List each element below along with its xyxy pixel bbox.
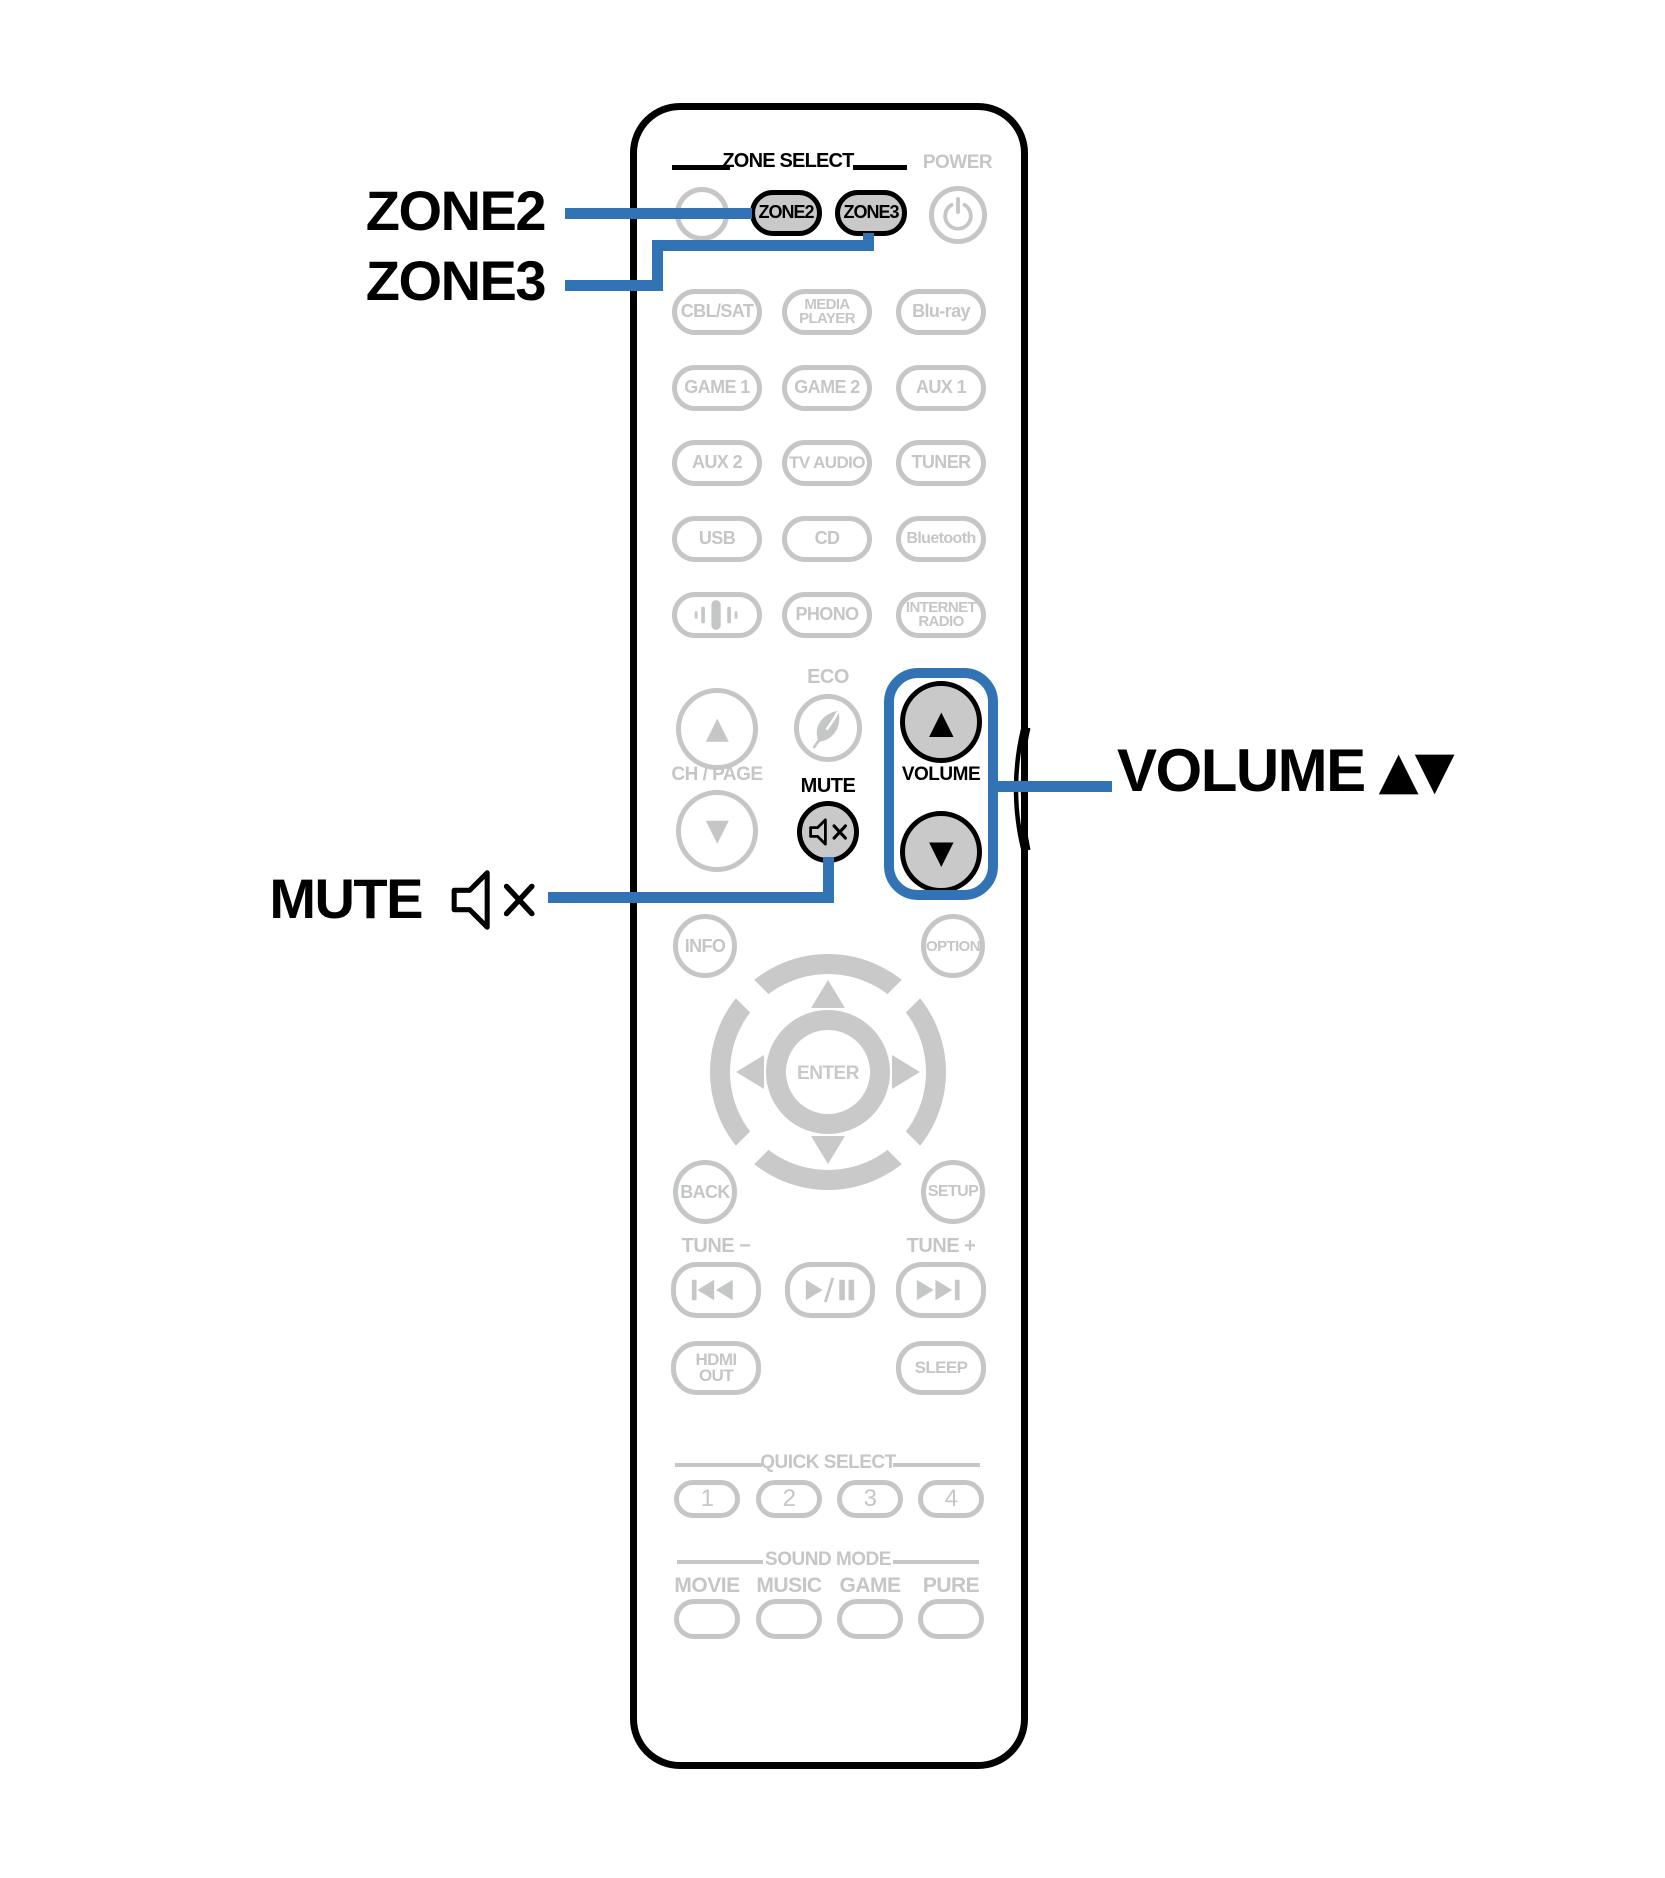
source-internet-radio[interactable]: INTERNET RADIO: [896, 592, 986, 638]
source-aux2[interactable]: AUX 2: [672, 440, 762, 486]
zone3-button[interactable]: ZONE3: [835, 190, 907, 236]
source-tv-audio[interactable]: TV AUDIO: [782, 440, 872, 486]
quick-select-title: QUICK SELECT: [738, 1452, 918, 1474]
sound-mode-music-button[interactable]: [756, 1599, 822, 1639]
sound-mode-title: SOUND MODE: [738, 1549, 918, 1571]
source-aux1[interactable]: AUX 1: [896, 365, 986, 411]
quick-select-3-button[interactable]: 3: [837, 1480, 903, 1518]
source-usb[interactable]: USB: [672, 516, 762, 562]
eco-button[interactable]: [794, 694, 862, 762]
skip-back-icon: [689, 1277, 743, 1303]
remote-diagram: ZONE SELECT POWER ZONE2 ZONE3 CBL/SAT ME…: [0, 0, 1665, 1878]
up-triangle-icon: ▲: [706, 714, 728, 744]
sound-mode-line-right: [893, 1560, 979, 1564]
source-game2[interactable]: GAME 2: [782, 365, 872, 411]
quick-select-4-button[interactable]: 4: [918, 1480, 984, 1518]
callout-line-zone3-h1: [652, 240, 874, 251]
mute-button-label: MUTE: [790, 775, 866, 798]
sound-mode-music-label: MUSIC: [744, 1574, 834, 1598]
power-button[interactable]: [929, 186, 987, 244]
quick-select-line-right: [893, 1463, 980, 1467]
source-cd[interactable]: CD: [782, 516, 872, 562]
ch-page-up-button[interactable]: ▲: [676, 688, 758, 770]
quick-select-2-button[interactable]: 2: [756, 1480, 822, 1518]
sound-mode-movie-button[interactable]: [674, 1599, 740, 1639]
ch-page-down-button[interactable]: ▼: [676, 790, 758, 872]
power-label: POWER: [905, 152, 1010, 174]
callout-line-zone2: [565, 208, 752, 219]
skip-forward-button[interactable]: [896, 1262, 986, 1318]
source-heos[interactable]: [672, 592, 762, 638]
eco-leaf-icon: [802, 702, 854, 754]
volume-highlight-box: [884, 668, 998, 900]
sound-mode-game-label: GAME: [825, 1574, 915, 1598]
source-phono[interactable]: PHONO: [782, 592, 872, 638]
source-game1[interactable]: GAME 1: [672, 365, 762, 411]
source-blu-ray[interactable]: Blu-ray: [896, 289, 986, 335]
source-tuner[interactable]: TUNER: [896, 440, 986, 486]
volume-callout-label: VOLUME ▲▼: [1117, 741, 1451, 801]
sound-mode-movie-label: MOVIE: [662, 1574, 752, 1598]
play-pause-icon: [801, 1277, 859, 1303]
zone2-callout-label: ZONE2: [295, 183, 545, 239]
cursor-pad[interactable]: ENTER: [710, 954, 946, 1190]
down-triangle-icon: ▼: [706, 816, 728, 846]
volume-callout-arrows: ▲▼: [1379, 745, 1451, 797]
sound-mode-pure-button[interactable]: [918, 1599, 984, 1639]
play-pause-button[interactable]: [785, 1262, 875, 1318]
skip-back-button[interactable]: [671, 1262, 761, 1318]
enter-label: ENTER: [797, 1063, 860, 1084]
setup-button[interactable]: SETUP: [921, 1160, 985, 1224]
tune-minus-label: TUNE −: [646, 1235, 786, 1258]
callout-line-zone3-h2: [565, 280, 663, 291]
mute-callout-icon: [446, 867, 540, 933]
mute-icon: [808, 817, 848, 847]
eco-label: ECO: [798, 666, 858, 689]
heos-icon: [691, 598, 743, 632]
zone-select-line-right: [853, 165, 907, 170]
sleep-button[interactable]: SLEEP: [896, 1341, 986, 1395]
source-media-player[interactable]: MEDIA PLAYER: [782, 289, 872, 335]
sound-mode-pure-label: PURE: [906, 1574, 996, 1598]
volume-callout-text: VOLUME: [1117, 741, 1365, 801]
hdmi-out-button[interactable]: HDMI OUT: [671, 1341, 761, 1395]
back-button[interactable]: BACK: [673, 1160, 737, 1224]
source-cbl-sat[interactable]: CBL/SAT: [672, 289, 762, 335]
callout-line-mute-h: [548, 892, 834, 903]
skip-forward-icon: [914, 1277, 968, 1303]
tune-plus-label: TUNE +: [871, 1235, 1011, 1258]
ch-page-label: CH / PAGE: [647, 764, 787, 786]
zone2-button[interactable]: ZONE2: [750, 190, 822, 236]
source-bluetooth[interactable]: Bluetooth: [896, 516, 986, 562]
callout-line-volume: [996, 781, 1112, 792]
zone-select-title: ZONE SELECT: [708, 150, 868, 173]
quick-select-1-button[interactable]: 1: [674, 1480, 740, 1518]
power-icon: [939, 196, 977, 234]
mute-button[interactable]: [797, 801, 859, 863]
sound-mode-game-button[interactable]: [837, 1599, 903, 1639]
mute-callout-label: MUTE: [250, 871, 422, 927]
zone3-callout-label: ZONE3: [295, 253, 545, 309]
